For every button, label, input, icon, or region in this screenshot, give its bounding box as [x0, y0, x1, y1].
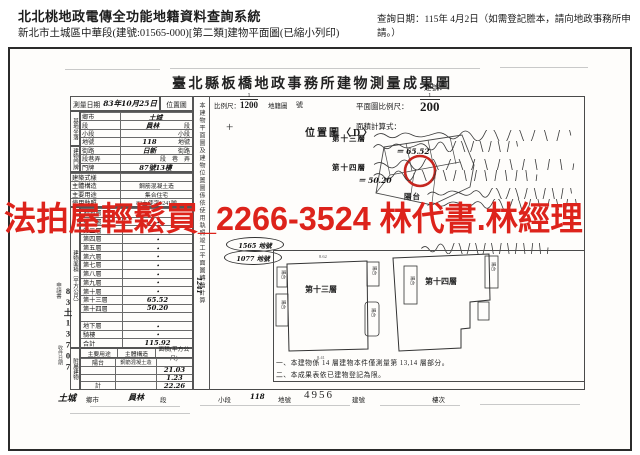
balcony-label: 陽台 [409, 276, 416, 286]
plan-13f-label: 第十三層 [305, 284, 337, 294]
floor-row: 第五層 ・ [81, 243, 192, 252]
survey-date-label: 測量日期 [73, 99, 100, 109]
floor-row: 第十三層 65.52 [81, 295, 192, 304]
floor-label: 第八層 [81, 270, 123, 278]
row-label: 街路 [81, 147, 121, 154]
scan-artifact-line [70, 413, 190, 414]
cadastre-scale-label: 比例尺： [214, 100, 240, 110]
table-row: 街路 日新 街路 [81, 146, 192, 154]
handwriting-squiggle [372, 170, 542, 181]
calc-floor-label: 第十三層 [332, 133, 366, 144]
floor-label: 第十四層 [81, 305, 123, 313]
plan-scale-label: 平面圖比例尺： [356, 101, 409, 112]
calc-result: ＝ 65.52 [396, 146, 430, 157]
red-ad-overlay: 法拍屋輕鬆買_2266-3524 林代書.林經理 [4, 198, 625, 239]
row-label: 段巷弄 [81, 155, 121, 162]
calc-item: 第十四層 ＝ 50.20 [330, 159, 596, 188]
fraction-denominator: 200 [420, 99, 440, 114]
vertical-note-strip: 本建物平面圖及建物位置圖係依使用執照竣工平面圖轉繪計算 [193, 96, 210, 390]
application-form-stamp: 申請書 [54, 282, 62, 299]
row-label: 主體構造 [71, 182, 121, 189]
annex-structure [116, 382, 157, 389]
annex-usage: 陽台 [81, 359, 116, 366]
floor-area: 50.20 [123, 304, 192, 312]
floor-row: 第十四層 50.20 [81, 304, 192, 313]
annex-table: 陽台 鋼筋混凝土造 21.03 1.23 計 [80, 357, 193, 390]
annex-header: 主要用途 主體構造 面積(平方公尺) [80, 348, 193, 357]
fraction-denominator: 1200 [240, 99, 258, 110]
scan-artifact-line [65, 69, 160, 70]
scan-artifact-line [170, 68, 480, 69]
footer-floor-label: 樓次 [432, 394, 445, 404]
footer-serial-number: 4956 [304, 389, 334, 401]
floor-row: 第九層 ・ [81, 278, 192, 287]
footer-section: 員林 [128, 392, 144, 403]
floor-label: 第六層 [81, 252, 123, 260]
row-label: 建築式樣 [71, 174, 121, 181]
annex-structure [116, 367, 157, 374]
no-suffix: 號 [296, 100, 303, 110]
handwriting-squiggle [372, 130, 577, 141]
annex-header-usage: 主要用途 [81, 349, 118, 357]
system-title: 北北桃地政電傳全功能地籍資料查詢系統 [18, 6, 261, 25]
handwriting-squiggle [372, 159, 580, 170]
scanned-document: 臺北縣板橋地政事務所建物測量成果圖 建號： 測量日期 83年10月25日 位置圖… [8, 47, 632, 451]
table-row: 主要用途 集合住宅 [71, 190, 192, 198]
balcony-label: 陽台 [370, 308, 377, 318]
survey-crosshair: + [226, 119, 233, 135]
annex-row: 21.03 [81, 366, 192, 374]
balcony-label: 陽台 [280, 300, 287, 310]
floor-label: 第五層 [81, 244, 123, 252]
note-line: 一、本建物係 14 層建物本件僅測量第 13,14 層部分。 [276, 358, 449, 370]
vertical-note: 本建物平面圖及建物位置圖係依使用執照竣工平面圖轉繪計算 [197, 102, 206, 390]
annex-header-structure: 主體構造 [118, 349, 155, 357]
floor-label: 騎樓 [81, 331, 123, 339]
table-row: 建築式樣 [71, 173, 192, 181]
floor-label: 第九層 [81, 279, 123, 287]
calc-result: ＝ 50.20 [358, 175, 392, 186]
scan-artifact-line [380, 405, 460, 406]
form-title: 臺北縣板橋地政事務所建物測量成果圖 [172, 73, 453, 93]
footer-city-label: 鄉市 [86, 394, 99, 404]
floor-row: 地下層 ・ [81, 321, 192, 330]
strip-handwritten-number: 1241 [195, 277, 202, 294]
annex-header-area: 面積(平方公尺) [156, 349, 192, 357]
handwriting-squiggle [372, 141, 522, 152]
floor-row [81, 312, 192, 321]
balcony-label: 陽台 [371, 266, 378, 276]
floor-area: 65.52 [123, 296, 192, 304]
survey-date-value: 83年10月25日 [103, 98, 157, 109]
annex-area: 22.26 [157, 382, 192, 390]
row-label: 段 [81, 121, 121, 128]
dim-top: 8.62 [319, 254, 327, 259]
floor-row: 第十層 ・ [81, 286, 192, 295]
annex-structure: 鋼筋混凝土造 [116, 359, 157, 366]
scan-artifact-line [200, 405, 350, 406]
row-label: 地號 [81, 138, 121, 145]
footer-city: 土城 [58, 391, 76, 404]
footer-parcel-label: 地號 [278, 394, 291, 404]
floor-row: 第七層 ・ [81, 260, 192, 269]
footer-section-label: 段 [160, 394, 167, 404]
floor-row: 第八層 ・ [81, 269, 192, 278]
balcony-label: 陽台 [280, 270, 287, 280]
table-row: 門牌 87號13樓 [81, 163, 192, 171]
cadastre-scale-fraction: 1 1200 [240, 93, 258, 110]
table-row: 段 員林 段 [81, 120, 192, 128]
floor-label: 第十層 [81, 287, 123, 295]
scan-artifact-line [480, 404, 580, 405]
group-door: 建物門牌 [70, 146, 80, 172]
receipt-date-label: 收件日期 [56, 345, 63, 365]
query-date: 查詢日期：115年 4月2日（如需登記謄本，請向地政事務所申請。） [377, 11, 640, 39]
notes: 一、本建物係 14 層建物本件僅測量第 13,14 層部分。 二、本成果表依已建… [276, 358, 449, 382]
plan-14f-label: 第十四層 [425, 276, 457, 286]
plan-scale-fraction: 1 200 [420, 93, 440, 114]
row-label: 主要用途 [71, 191, 121, 198]
footer-subsection-label: 小段 [218, 394, 231, 404]
site-table: 鄉市 土城 段 員林 段 小段 小段 地號 1 [80, 111, 193, 172]
note-line: 二、本成果表依已建物登記為限。 [276, 370, 449, 382]
calc-item: 第十三層 ＝ 65.52 [330, 130, 596, 159]
annex-usage: 計 [81, 382, 116, 389]
row-label: 小段 [81, 130, 121, 137]
group-site: 基地坐落 [70, 111, 80, 146]
annex-structure [116, 375, 157, 382]
floor-label: 第七層 [81, 261, 123, 269]
row-label: 鄉市 [81, 113, 121, 120]
annex-row: 計 22.26 [81, 381, 192, 389]
annex-row: 陽台 鋼筋混凝土造 [81, 358, 192, 366]
scan-artifact-line [500, 67, 588, 68]
calc-floor-label: 第十四層 [332, 162, 366, 173]
row-label: 門牌 [81, 164, 121, 171]
floor-label [81, 313, 123, 321]
survey-date-row: 測量日期 83年10月25日 [70, 96, 160, 111]
building-no-label: 建號： [424, 82, 447, 93]
footer-serial-label: 建號 [352, 394, 365, 404]
floor-label: 地下層 [81, 322, 123, 330]
floor-label: 合計 [81, 339, 123, 347]
cadastre-scale-suffix: 地籍圖 [268, 100, 288, 110]
query-system-page: 北北桃地政電傳全功能地籍資料查詢系統 新北市土城區中華段(建號:01565-00… [0, 0, 640, 455]
balcony-label: 陽台 [490, 262, 497, 272]
annex-row: 1.23 [81, 374, 192, 382]
table-row: 小段 小段 [81, 129, 192, 137]
floor-row: 第六層 ・ [81, 251, 192, 260]
receipt-number-stamp: 83土13707 [62, 286, 74, 373]
annex-usage [81, 367, 116, 374]
floor-label: 第十三層 [81, 296, 123, 304]
row-value: 87號13樓 [121, 162, 190, 172]
table-row: 主體構造 鋼筋混凝土造 [71, 181, 192, 189]
scan-artifact-line [90, 406, 180, 407]
document-subtitle: 新北市土城區中華段(建號:01565-000)[第二類]建物平面圖(已縮小列印) [18, 25, 339, 40]
floor-row: 騎樓 ・ [81, 330, 192, 339]
footer-parcel: 118 [250, 392, 265, 401]
location-map-cell: 位置圖 [160, 96, 193, 111]
